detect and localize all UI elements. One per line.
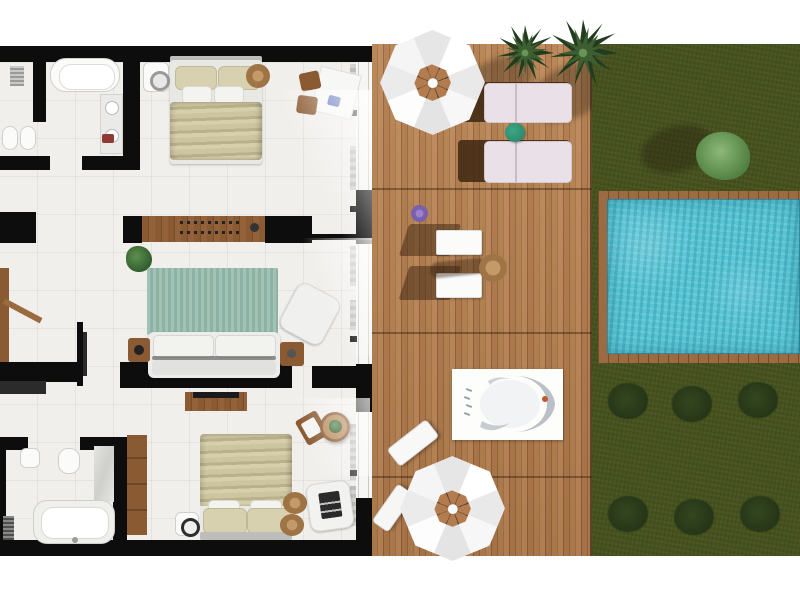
dark-shelf: [0, 381, 46, 394]
desk-chair-2: [296, 95, 318, 116]
shelf-unit: [10, 66, 24, 86]
purple-flower: [411, 205, 428, 222]
white-sofa: [148, 332, 280, 378]
jute-rug: [280, 514, 304, 536]
bathtub-top: [50, 58, 120, 92]
red-towel: [102, 134, 114, 143]
palm-tree: [496, 24, 554, 82]
divider-black-left: [123, 216, 142, 243]
bed-top-duvet: [170, 102, 262, 160]
wardrobe: [127, 435, 147, 535]
dark-shrub: [674, 499, 714, 535]
wall-glass-segment-3: [356, 498, 372, 542]
media-console: [185, 392, 247, 411]
glass-sliding-wall: [356, 46, 372, 556]
bath-faucet: [72, 537, 78, 543]
nightstand: [175, 512, 199, 536]
wall-shower-closet: [33, 58, 46, 122]
table-lamp: [134, 345, 144, 355]
jute-rug: [283, 492, 307, 514]
curtain: [350, 246, 356, 286]
vanity-top: [100, 94, 123, 154]
bathtub-bottom: [33, 500, 115, 544]
bathtub-bottom-basin: [41, 507, 109, 539]
antler-decor: [180, 221, 240, 224]
dark-shrub: [608, 383, 648, 419]
toilet-bottom: [58, 448, 80, 474]
decor-knob: [250, 223, 259, 232]
pillow: [203, 508, 247, 534]
green-side-table: [505, 123, 525, 142]
art-print-cushion: [318, 491, 342, 520]
dark-shrub: [608, 496, 648, 532]
table-plant: [329, 420, 342, 433]
sofa-seat-cushion: [215, 335, 276, 358]
wall-bathroom-top-south-left: [0, 156, 50, 170]
palm-tree: [548, 18, 618, 88]
side-table-right: [280, 342, 304, 366]
wall-living-divider-west: [0, 362, 78, 382]
tv-screen: [193, 392, 239, 398]
floor-plan-render: [0, 0, 800, 600]
curtain: [350, 300, 356, 330]
wall-glass-segment-2: [356, 364, 372, 412]
washer-door: [150, 71, 170, 91]
sun-lounger-mattress: [484, 141, 572, 183]
wall-bathroom-top-south-right: [82, 156, 140, 170]
door-handle-tick: [350, 470, 357, 476]
dark-shrub: [740, 496, 780, 532]
bed-bottom-headboard: [200, 532, 292, 540]
light-green-bush: [696, 132, 750, 180]
round-pouf: [246, 64, 270, 88]
mattress-seam: [515, 84, 517, 122]
washing-machine: [143, 62, 169, 92]
sink-bottom: [20, 448, 40, 468]
divider-low-ledge: [312, 234, 356, 240]
wall-hall-stub: [0, 212, 36, 243]
door-handle-tick: [350, 206, 357, 212]
wall-living-divider-east: [312, 366, 356, 388]
white-deck-chair: [436, 230, 482, 255]
nightstand-lamp: [181, 518, 200, 537]
bed-bottom-duvet: [200, 434, 292, 508]
curtain: [350, 146, 356, 190]
wall-bathroom-top-east: [123, 58, 140, 170]
toilet-top: [2, 126, 18, 150]
palm-icon: [548, 18, 618, 88]
sofa-seat-cushion: [153, 335, 214, 358]
bedroom-armchair: [305, 479, 355, 533]
dark-shrub: [672, 386, 712, 422]
divider-black-right: [265, 216, 312, 243]
teal-area-rug: [147, 268, 278, 335]
chair-cushion: [301, 417, 322, 439]
sink-bowl: [105, 101, 119, 115]
sofa-backrest: [152, 360, 276, 375]
radiator: [3, 516, 14, 540]
door-handle-tick: [350, 336, 357, 342]
round-wooden-stool: [479, 254, 507, 282]
entrance-door-frame: [0, 268, 9, 362]
bidet-top: [20, 126, 36, 150]
table-decor: [287, 349, 296, 358]
outdoor-bathtub-icon: [452, 369, 563, 440]
antler-decor: [180, 231, 240, 234]
wall-bathroom-bottom-east: [113, 437, 127, 542]
palm-icon: [496, 24, 554, 82]
round-table: [320, 412, 350, 442]
deck-seam: [372, 332, 592, 334]
marble-shower-wall: [94, 446, 114, 502]
wooden-sideboard: [142, 216, 265, 242]
sun-lounger-mattress: [484, 83, 572, 123]
deck-seam: [372, 188, 592, 190]
pool-water: [607, 199, 800, 354]
wall-mounted-tv: [83, 332, 87, 376]
outdoor-tub-platform: [452, 369, 563, 440]
side-table-left: [128, 338, 150, 362]
dark-shrub: [738, 382, 778, 418]
wall-glass-segment-1: [356, 190, 372, 244]
mattress-seam: [515, 142, 517, 182]
bathtub-top-basin: [59, 64, 115, 90]
